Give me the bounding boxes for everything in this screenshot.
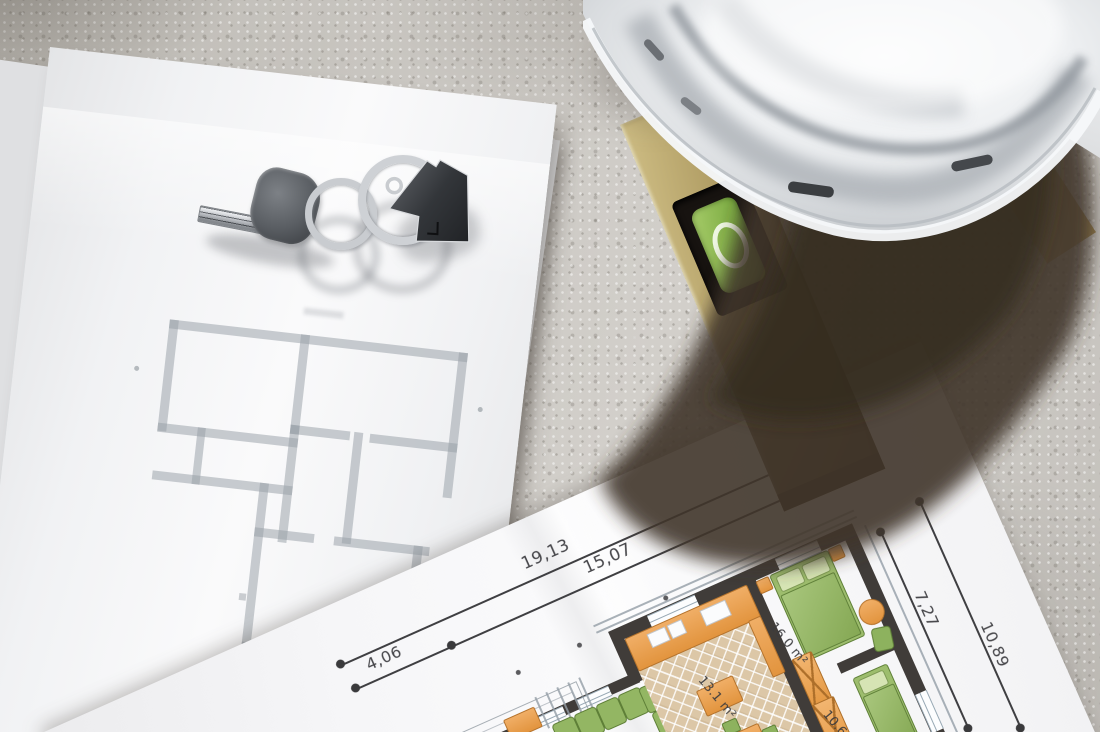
plan-mark (134, 366, 140, 372)
wall (169, 319, 468, 362)
house-keychain-icon (376, 147, 481, 259)
wall (290, 334, 310, 434)
wall (342, 432, 364, 544)
hard-hat (583, 0, 1100, 268)
faint-title-smudge (303, 307, 344, 318)
wall (241, 483, 269, 651)
wall (369, 434, 457, 453)
wall (157, 319, 179, 431)
photo-scene: { "scene": { "setting": "Top-down photog… (0, 0, 1100, 732)
wall (157, 423, 298, 448)
plan-mark (477, 407, 483, 413)
plan-mark (239, 593, 247, 601)
wall (152, 470, 293, 495)
wall (443, 352, 468, 498)
